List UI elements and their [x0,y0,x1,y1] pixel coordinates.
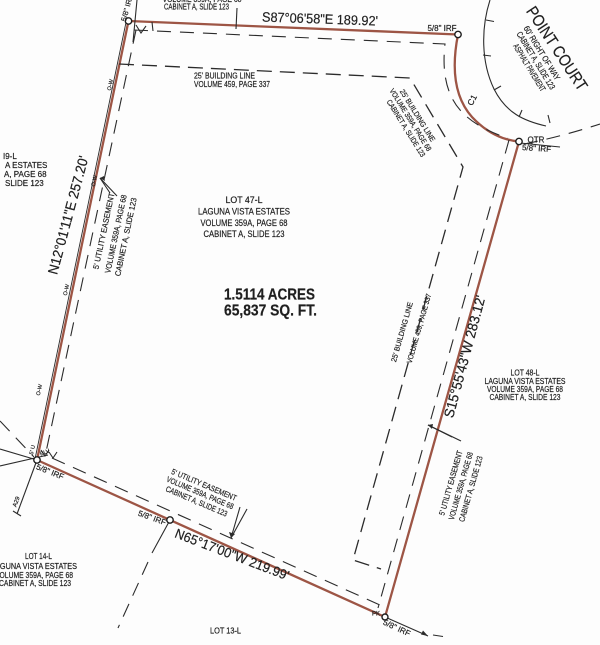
svg-text:CABINET A, SLIDE 123: CABINET A, SLIDE 123 [164,3,229,12]
svg-text:LOT 14-L: LOT 14-L [25,552,52,561]
svg-text:A ESTATES: A ESTATES [5,161,47,170]
svg-text:CABINET A, SLIDE 123: CABINET A, SLIDE 123 [204,229,285,239]
svg-text:CABINET A, SLIDE 123: CABINET A, SLIDE 123 [0,579,71,588]
svg-text:LAGUNA VISTA ESTATES: LAGUNA VISTA ESTATES [198,207,290,217]
svg-text:LOT 47-L: LOT 47-L [226,195,263,205]
svg-text:5/8" IRF: 5/8" IRF [427,24,456,33]
svg-text:I9-L: I9-L [3,152,17,161]
svg-text:LAGUNA VISTA ESTATES: LAGUNA VISTA ESTATES [0,562,77,571]
svg-text:LOT 13-L: LOT 13-L [210,627,242,636]
svg-text:PK: PK [372,612,380,618]
svg-text:65,837 SQ. FT.: 65,837 SQ. FT. [224,303,317,320]
svg-text:VOLUME 359A, PAGE 68: VOLUME 359A, PAGE 68 [201,218,288,228]
svg-text:SLIDE 123: SLIDE 123 [5,179,44,188]
svg-text:A, PAGE 68: A, PAGE 68 [4,170,47,179]
svg-text:1.5114 ACRES: 1.5114 ACRES [224,287,315,304]
svg-text:CABINET A, SLIDE 123: CABINET A, SLIDE 123 [490,393,561,402]
svg-text:VOLUME 459, PAGE 337: VOLUME 459, PAGE 337 [194,80,270,89]
